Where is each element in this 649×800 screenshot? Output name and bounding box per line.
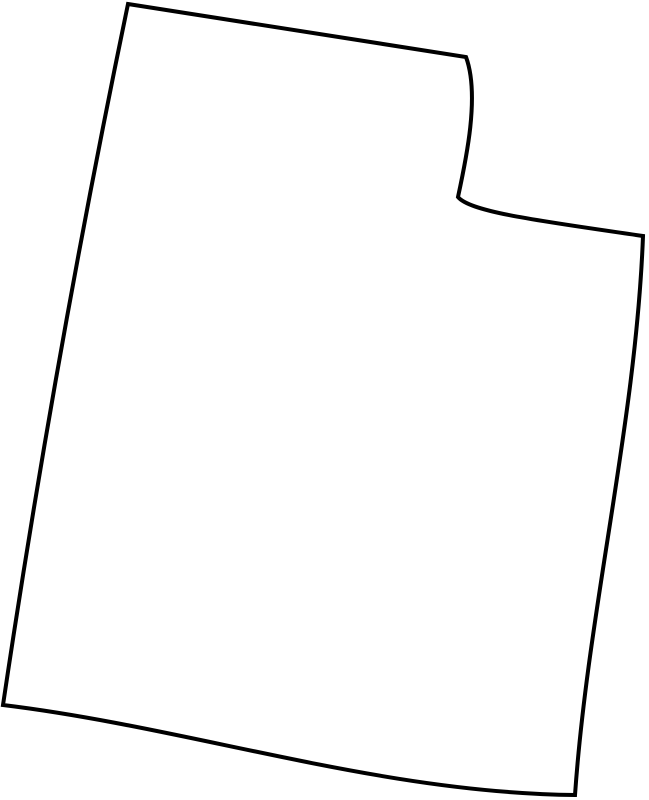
utah-state-outline bbox=[3, 4, 643, 795]
map-canvas bbox=[0, 0, 649, 800]
utah-map bbox=[0, 0, 649, 800]
